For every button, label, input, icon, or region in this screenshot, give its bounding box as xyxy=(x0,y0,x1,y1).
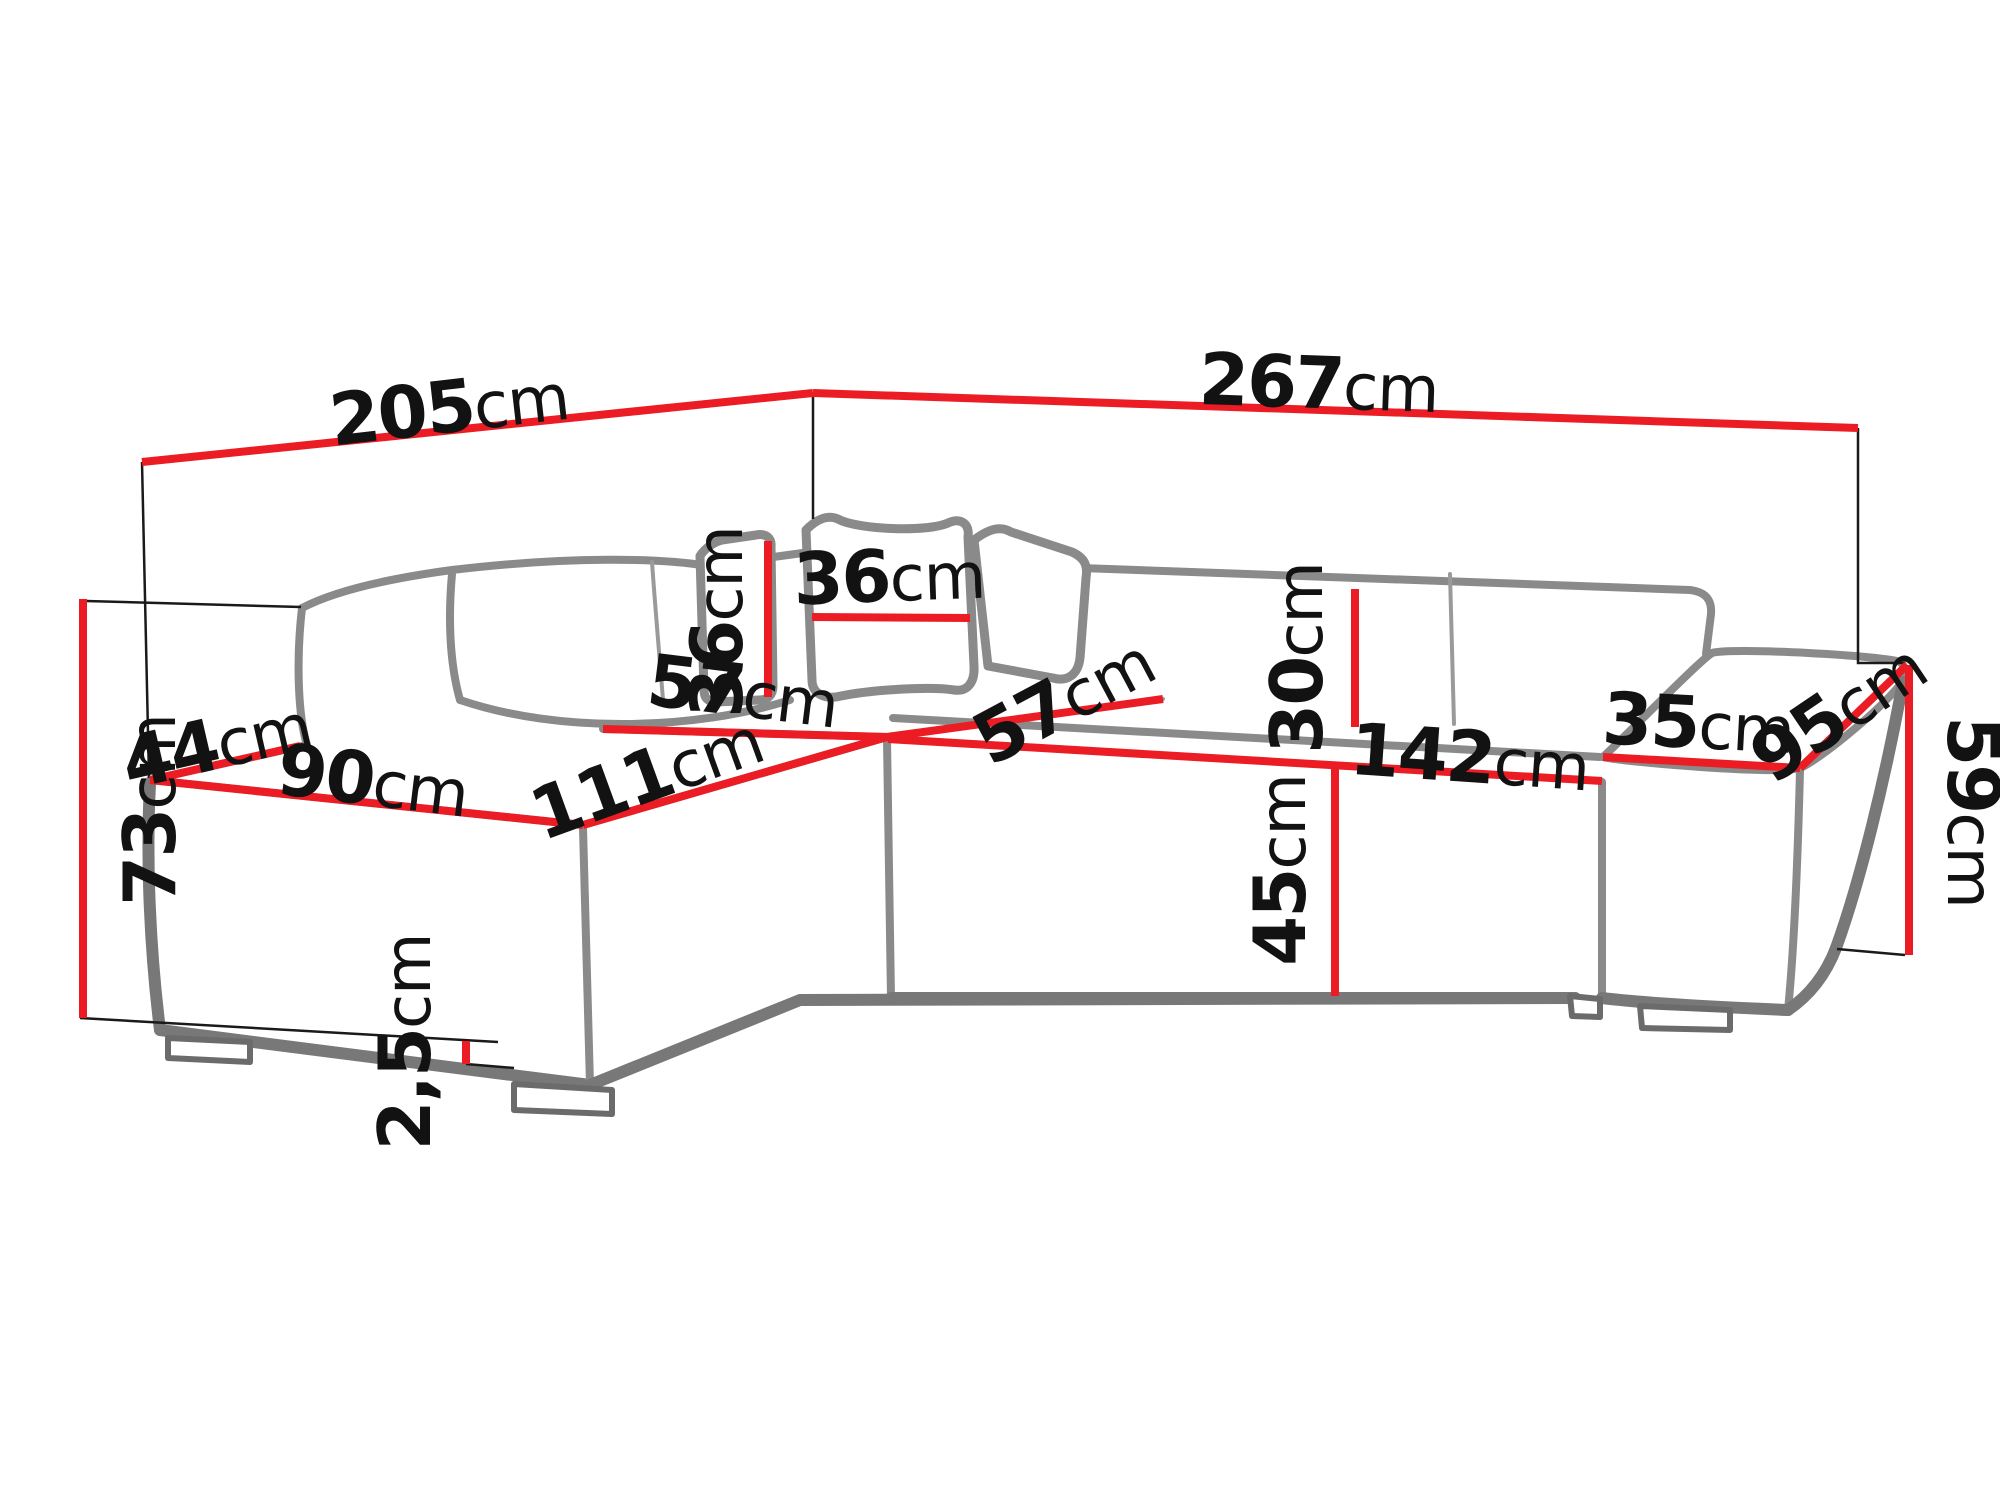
dim-label-chaise-seat-width: 90cm xyxy=(273,727,474,834)
pillow-right-back xyxy=(974,529,1087,679)
dim-label-total-width-left: 205cm xyxy=(325,352,573,463)
foot-front-left xyxy=(168,1038,250,1062)
dim-label-seat-width: 142cm xyxy=(1347,707,1592,808)
dim-label-pillow-height: 36cm xyxy=(675,526,759,718)
foot-armrest xyxy=(1640,1006,1730,1030)
sofa-dimension-diagram: 205cm 267cm 73cm 44cm 90cm 111cm 57cm 36… xyxy=(0,0,2000,1500)
dim-label-backrest-cushion-height: 30cm xyxy=(1255,562,1339,754)
dim-label-pillow-width: 36cm xyxy=(792,531,987,622)
dim-label-armrest-height: 59cm xyxy=(1931,716,2000,908)
foot-front-right xyxy=(1570,996,1600,1017)
foot-front-center xyxy=(514,1084,612,1114)
dim-label-foot-height: 2,5cm xyxy=(363,933,447,1150)
dim-label-total-width-right: 267cm xyxy=(1198,337,1441,429)
dim-label-seat-height: 45cm xyxy=(1238,774,1322,966)
diagram-stage: 205cm 267cm 73cm 44cm 90cm 111cm 57cm 36… xyxy=(0,0,2000,1500)
